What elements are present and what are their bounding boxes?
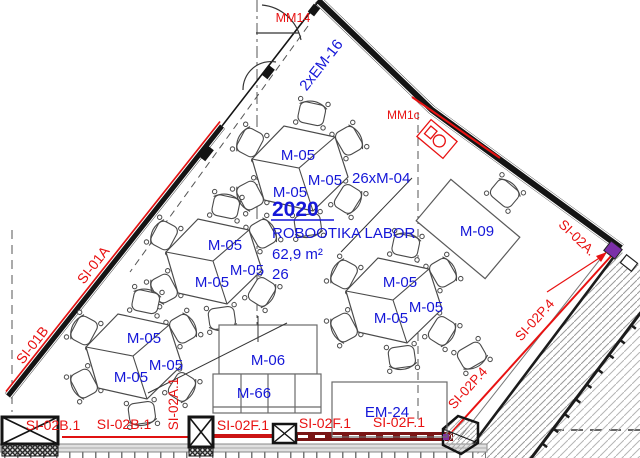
wall-label-si02p4: SI-02P.4: [445, 364, 490, 412]
table-label: M-05: [208, 237, 242, 254]
room-capacity: 26: [272, 266, 289, 283]
wall-label-si02f1: SI-02F.1: [217, 417, 269, 433]
door-stop: [261, 65, 275, 79]
room-number: 2020: [272, 198, 319, 221]
door-label: 2xEM-16: [296, 36, 346, 94]
wall-label-si02f1: SI-02F.1: [373, 414, 425, 430]
wall-label-si02p4: SI-02P.4: [512, 296, 557, 344]
table-label: M-05: [149, 357, 183, 374]
floor-plan: 2020 ROBOOTIKA LABOR 62,9 m² 26 M-05 M-0…: [0, 0, 640, 458]
table-label: M-05: [281, 147, 315, 164]
wall-label-si02b1: SI-02B.1: [26, 417, 81, 433]
wall-label-si02f1: SI-02F.1: [299, 415, 351, 431]
table-label: M-05: [273, 184, 307, 201]
wall-label-mm14: MM14: [276, 11, 311, 25]
desk-label: M-09: [460, 223, 494, 240]
room-area: 62,9 m²: [272, 246, 323, 263]
room-name: ROBOOTIKA LABOR: [272, 225, 416, 242]
table-label: M-05: [114, 369, 148, 386]
table-label: M-05: [383, 274, 417, 291]
chairs-count-label: 26xM-04: [352, 170, 410, 187]
column: [189, 417, 213, 456]
wall-label-mm1c: MM1c: [387, 108, 420, 122]
bench-label: M-06: [251, 352, 285, 369]
floor-plan-canvas: 2020 ROBOOTIKA LABOR 62,9 m² 26 M-05 M-0…: [0, 0, 640, 458]
table-label: M-05: [308, 172, 342, 189]
table-label: M-05: [230, 262, 264, 279]
chair: [451, 336, 493, 377]
cabinet-label: M-66: [237, 385, 271, 402]
table-label: M-05: [127, 330, 161, 347]
table-label: M-05: [195, 274, 229, 291]
wall-label-si02a1: SI-02A.1: [166, 378, 181, 431]
column: [273, 424, 296, 443]
wall-label-si02b1: SI-02B.1: [97, 416, 152, 432]
table-label: M-05: [409, 299, 443, 316]
table-label: M-05: [374, 310, 408, 327]
